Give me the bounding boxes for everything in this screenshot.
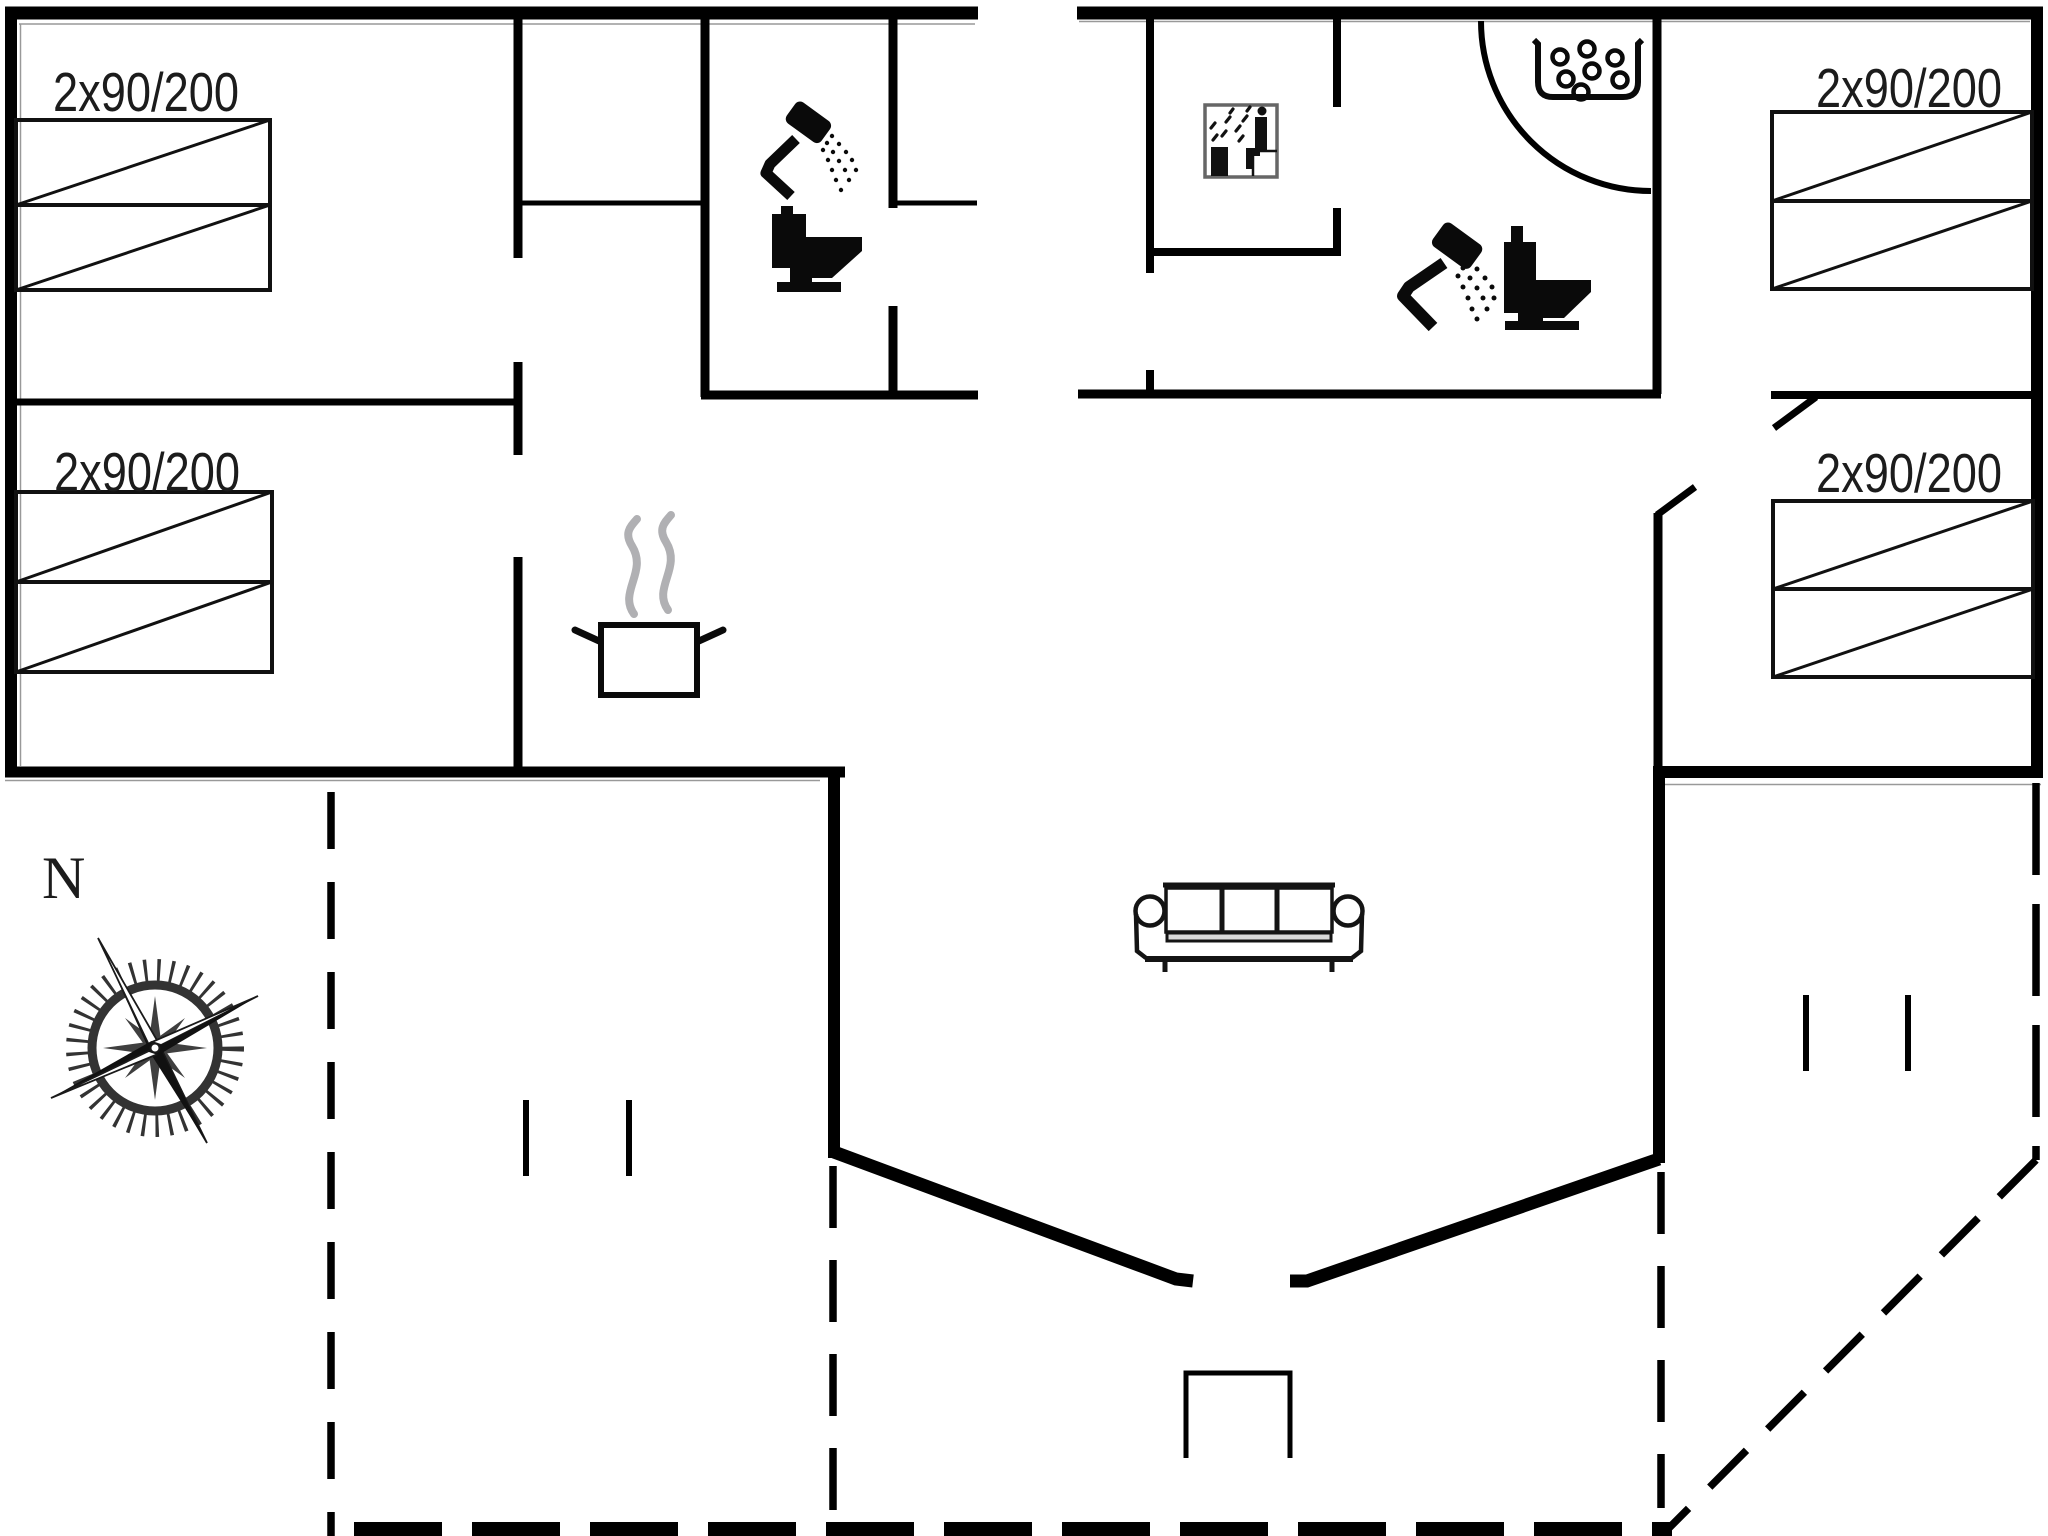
svg-text:2x90/200: 2x90/200 xyxy=(53,61,239,123)
svg-text:N: N xyxy=(42,845,85,911)
svg-text:2x90/200: 2x90/200 xyxy=(54,441,240,503)
svg-text:2x90/200: 2x90/200 xyxy=(1816,442,2002,504)
svg-text:2x90/200: 2x90/200 xyxy=(1816,57,2002,119)
